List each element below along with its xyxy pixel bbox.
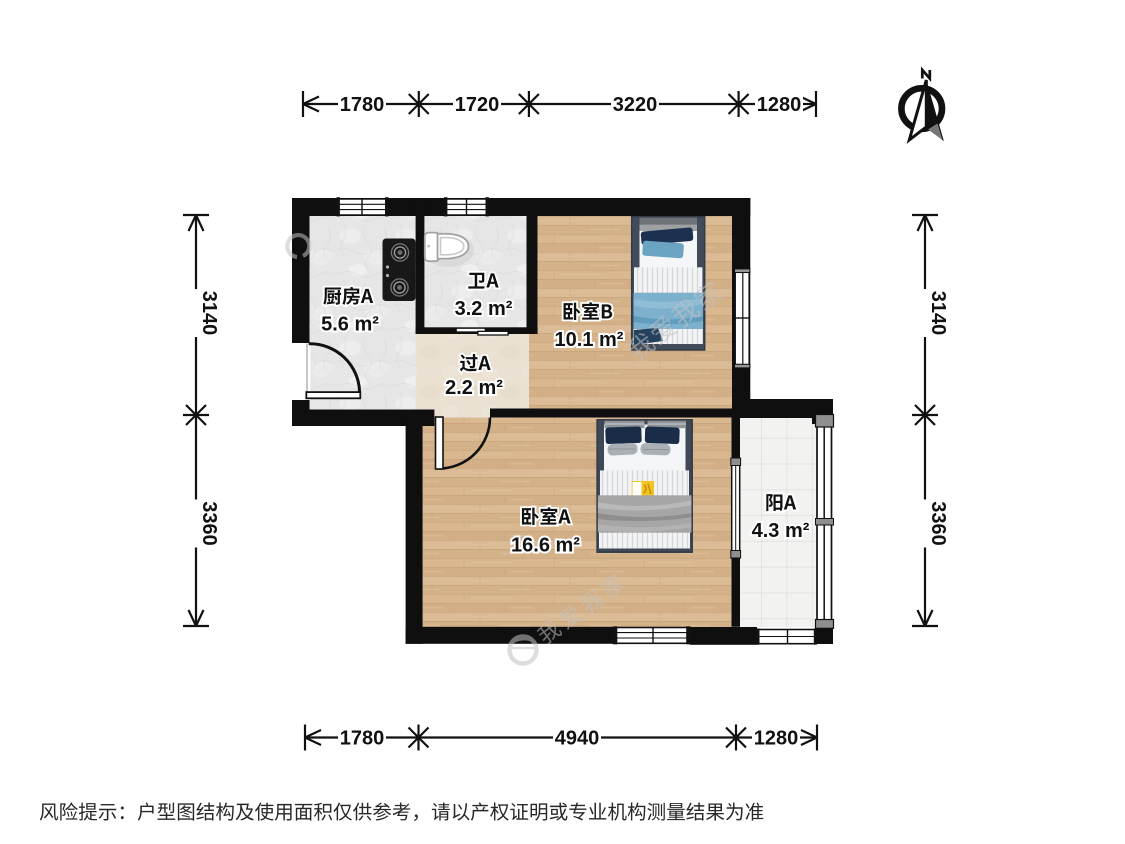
svg-text:3140: 3140 xyxy=(198,291,220,336)
svg-text:10.1 m²: 10.1 m² xyxy=(555,329,624,351)
svg-text:3140: 3140 xyxy=(927,291,949,336)
svg-text:5.6 m²: 5.6 m² xyxy=(321,314,379,336)
svg-text:1780: 1780 xyxy=(340,94,385,116)
svg-text:1720: 1720 xyxy=(455,94,500,116)
svg-text:4940: 4940 xyxy=(555,728,600,750)
svg-text:3360: 3360 xyxy=(198,501,220,546)
svg-text:4.3 m²: 4.3 m² xyxy=(752,520,810,542)
svg-text:3.2 m²: 3.2 m² xyxy=(455,298,513,320)
svg-text:1280: 1280 xyxy=(757,94,802,116)
svg-text:1280: 1280 xyxy=(754,728,799,750)
svg-text:3360: 3360 xyxy=(927,501,949,546)
svg-text:16.6 m²: 16.6 m² xyxy=(511,535,580,557)
svg-text:2.2 m²: 2.2 m² xyxy=(445,377,503,399)
svg-text:3220: 3220 xyxy=(613,94,658,116)
svg-text:1780: 1780 xyxy=(340,728,385,750)
